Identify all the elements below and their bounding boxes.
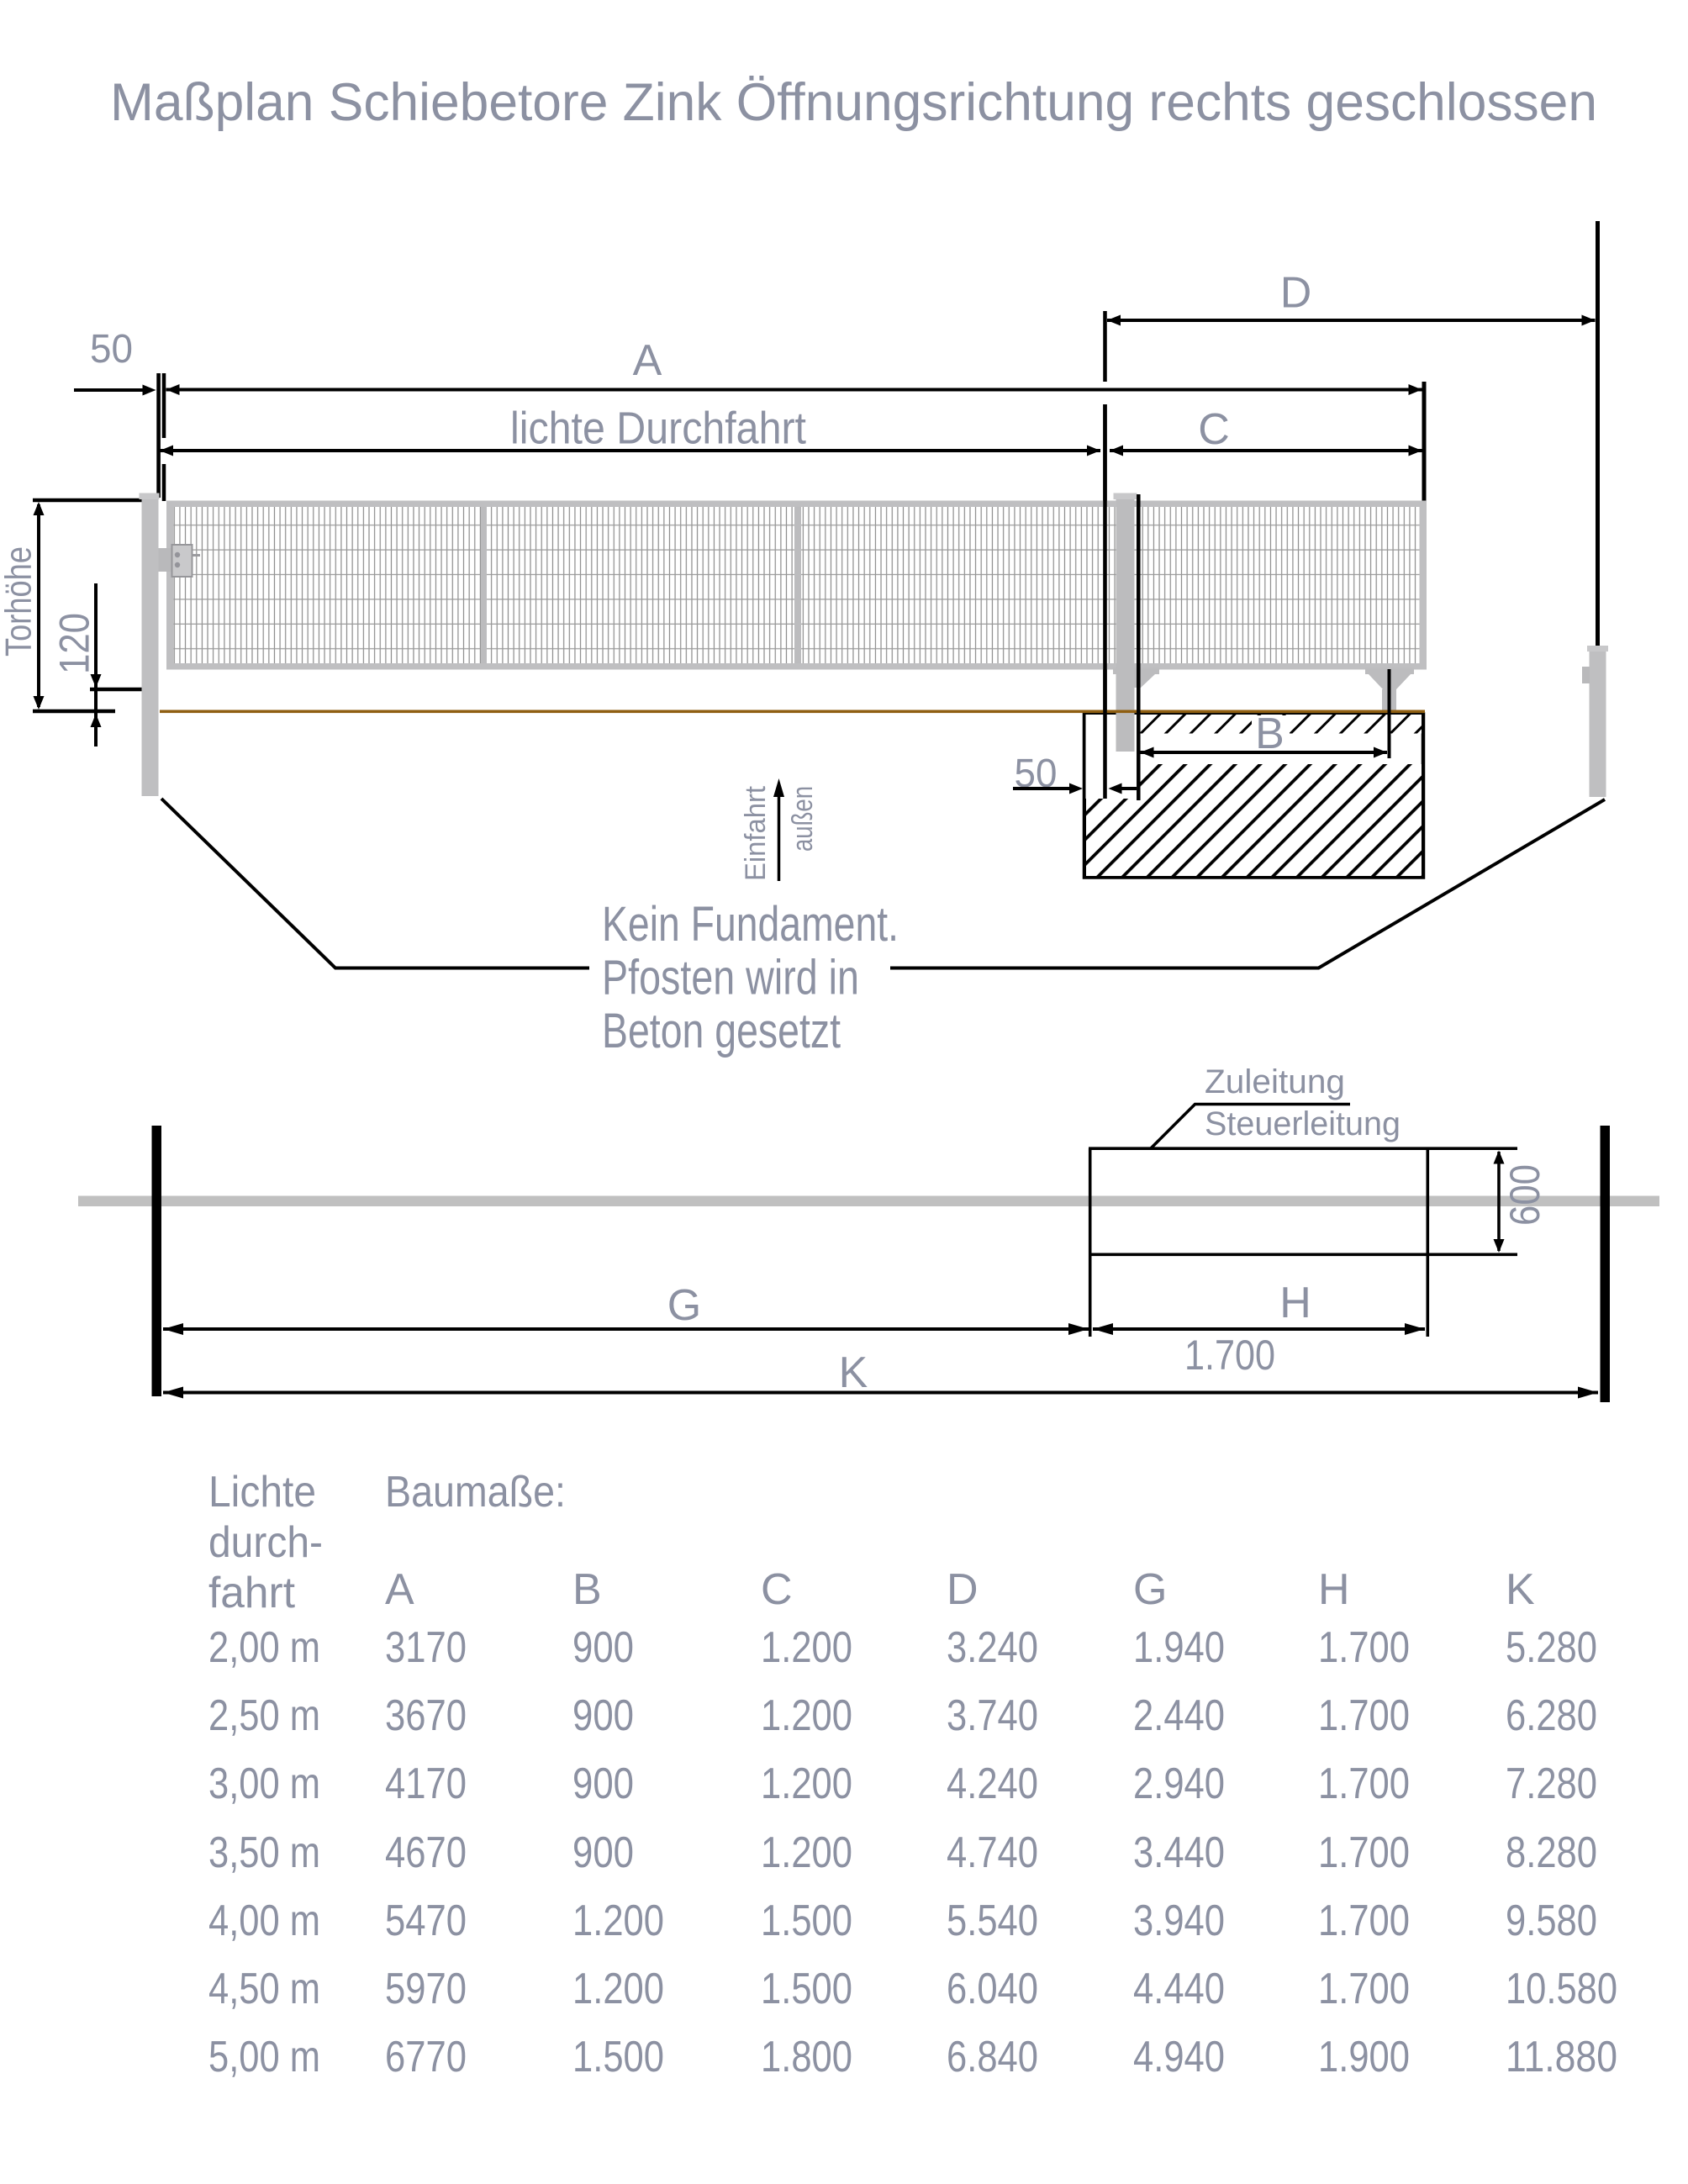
- svg-text:4,00 m: 4,00 m: [208, 1896, 320, 1945]
- svg-text:3,00 m: 3,00 m: [208, 1759, 320, 1808]
- svg-text:900: 900: [572, 1828, 634, 1877]
- svg-text:Baumaße:: Baumaße:: [385, 1468, 566, 1517]
- svg-text:Pfosten wird in: Pfosten wird in: [602, 951, 859, 1005]
- svg-text:50: 50: [90, 327, 133, 372]
- svg-text:Beton gesetzt: Beton gesetzt: [602, 1004, 841, 1058]
- svg-text:3170: 3170: [385, 1623, 467, 1672]
- svg-text:Lichte: Lichte: [208, 1468, 316, 1517]
- svg-text:4.940: 4.940: [1133, 2033, 1225, 2081]
- svg-text:11.880: 11.880: [1506, 2033, 1617, 2081]
- svg-text:1.200: 1.200: [572, 1896, 664, 1945]
- svg-text:2,50 m: 2,50 m: [208, 1691, 320, 1740]
- svg-text:120: 120: [51, 613, 98, 674]
- svg-text:2,00 m: 2,00 m: [208, 1623, 320, 1672]
- svg-text:Zuleitung: Zuleitung: [1205, 1063, 1345, 1100]
- svg-text:5.280: 5.280: [1506, 1623, 1597, 1672]
- svg-text:1.200: 1.200: [761, 1623, 852, 1672]
- svg-text:10.580: 10.580: [1506, 1965, 1617, 2013]
- svg-text:9.580: 9.580: [1506, 1896, 1597, 1945]
- svg-text:G: G: [1133, 1565, 1167, 1614]
- svg-text:1.500: 1.500: [761, 1965, 852, 2013]
- svg-text:B: B: [1255, 710, 1284, 758]
- svg-text:4.440: 4.440: [1133, 1965, 1225, 2013]
- svg-text:C: C: [1198, 405, 1230, 454]
- svg-text:1.500: 1.500: [761, 1896, 852, 1945]
- svg-text:4.740: 4.740: [947, 1828, 1038, 1877]
- svg-text:1.800: 1.800: [761, 2033, 852, 2081]
- svg-text:1.700: 1.700: [1318, 1623, 1410, 1672]
- svg-text:4,50 m: 4,50 m: [208, 1965, 320, 2013]
- svg-text:Einfahrt: Einfahrt: [740, 785, 772, 881]
- svg-text:1.700: 1.700: [1318, 1691, 1410, 1740]
- svg-text:G: G: [667, 1281, 701, 1330]
- svg-text:3.440: 3.440: [1133, 1828, 1225, 1877]
- svg-text:Maßplan Schiebetore Zink Öffnu: Maßplan Schiebetore Zink Öffnungsrichtun…: [110, 73, 1597, 132]
- svg-text:2.440: 2.440: [1133, 1691, 1225, 1740]
- svg-text:5,00 m: 5,00 m: [208, 2033, 320, 2081]
- svg-text:6.040: 6.040: [947, 1965, 1038, 2013]
- svg-text:6.840: 6.840: [947, 2033, 1038, 2081]
- svg-text:H: H: [1318, 1565, 1350, 1614]
- svg-text:7.280: 7.280: [1506, 1759, 1597, 1808]
- svg-text:5.540: 5.540: [947, 1896, 1038, 1945]
- svg-text:außen: außen: [787, 786, 819, 852]
- svg-text:5470: 5470: [385, 1896, 467, 1945]
- svg-text:Kein Fundament.: Kein Fundament.: [602, 897, 899, 952]
- svg-text:A: A: [633, 336, 662, 385]
- svg-text:1.700: 1.700: [1318, 1759, 1410, 1808]
- svg-text:6.280: 6.280: [1506, 1691, 1597, 1740]
- svg-text:K: K: [1506, 1565, 1535, 1614]
- svg-text:1.900: 1.900: [1318, 2033, 1410, 2081]
- svg-text:D: D: [1280, 269, 1312, 318]
- svg-text:1.940: 1.940: [1133, 1623, 1225, 1672]
- svg-text:4.240: 4.240: [947, 1759, 1038, 1808]
- svg-text:4670: 4670: [385, 1828, 467, 1877]
- svg-text:3.740: 3.740: [947, 1691, 1038, 1740]
- svg-text:900: 900: [572, 1623, 634, 1672]
- svg-text:1.700: 1.700: [1318, 1896, 1410, 1945]
- svg-text:lichte Durchfahrt: lichte Durchfahrt: [510, 404, 806, 454]
- svg-text:8.280: 8.280: [1506, 1828, 1597, 1877]
- svg-text:1.700: 1.700: [1318, 1828, 1410, 1877]
- svg-text:Steuerleitung: Steuerleitung: [1205, 1105, 1401, 1142]
- svg-text:6770: 6770: [385, 2033, 467, 2081]
- svg-text:600: 600: [1501, 1164, 1548, 1226]
- svg-text:2.940: 2.940: [1133, 1759, 1225, 1808]
- svg-text:1.700: 1.700: [1318, 1965, 1410, 2013]
- svg-text:D: D: [947, 1565, 979, 1614]
- svg-text:fahrt: fahrt: [208, 1569, 296, 1617]
- svg-text:900: 900: [572, 1759, 634, 1808]
- svg-text:Torhöhe: Torhöhe: [0, 546, 40, 657]
- svg-text:1.200: 1.200: [761, 1759, 852, 1808]
- svg-text:1.700: 1.700: [1184, 1332, 1275, 1379]
- svg-text:B: B: [572, 1565, 602, 1614]
- svg-text:1.200: 1.200: [572, 1965, 664, 2013]
- svg-text:3670: 3670: [385, 1691, 467, 1740]
- svg-text:5970: 5970: [385, 1965, 467, 2013]
- svg-text:3.940: 3.940: [1133, 1896, 1225, 1945]
- svg-text:C: C: [761, 1565, 793, 1614]
- svg-text:A: A: [385, 1565, 414, 1614]
- svg-text:1.500: 1.500: [572, 2033, 664, 2081]
- svg-text:K: K: [839, 1348, 868, 1397]
- svg-text:durch-: durch-: [208, 1518, 323, 1567]
- svg-text:1.200: 1.200: [761, 1828, 852, 1877]
- svg-text:1.200: 1.200: [761, 1691, 852, 1740]
- svg-text:3,50 m: 3,50 m: [208, 1828, 320, 1877]
- svg-text:4170: 4170: [385, 1759, 467, 1808]
- svg-text:900: 900: [572, 1691, 634, 1740]
- svg-text:3.240: 3.240: [947, 1623, 1038, 1672]
- svg-text:H: H: [1279, 1279, 1311, 1327]
